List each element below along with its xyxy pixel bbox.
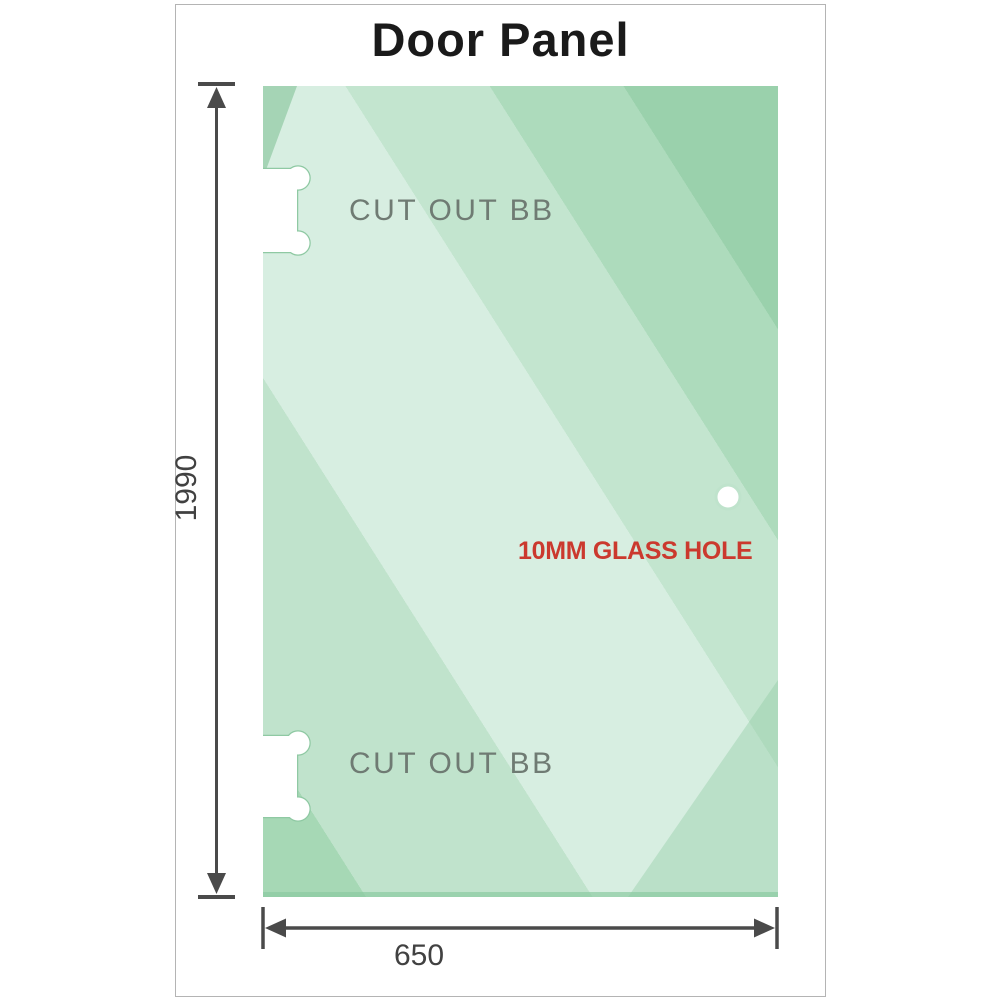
width-dimension-value: 650 (369, 941, 469, 971)
diagram-canvas: Door Panel (0, 0, 1000, 1000)
cutout-label-bottom: CUT OUT BB (349, 749, 555, 779)
height-dimension-value: 1990 (172, 408, 202, 568)
glass-hole-label: 10MM GLASS HOLE (518, 539, 752, 564)
diagram-title: Door Panel (175, 13, 826, 67)
image-frame (175, 4, 826, 997)
cutout-label-top: CUT OUT BB (349, 196, 555, 226)
